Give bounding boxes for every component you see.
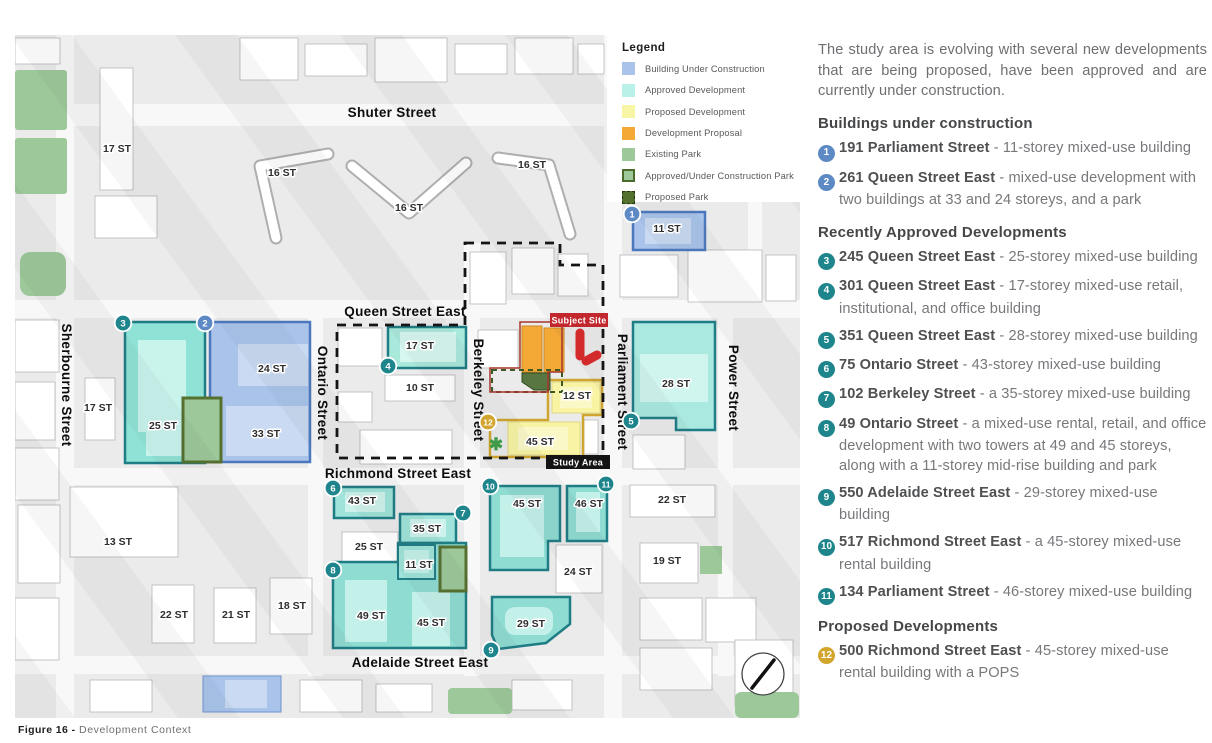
- development-list-item: 11134 Parliament Street - 46-storey mixe…: [818, 583, 1207, 605]
- building-storey-label: 46 ST: [575, 498, 604, 510]
- item-address: 517 Richmond Street East: [839, 534, 1021, 550]
- building-storey-label: 17 ST: [84, 402, 113, 414]
- street-name-label: Richmond Street East: [325, 466, 471, 481]
- building-storey-label: 45 ST: [417, 617, 446, 629]
- building-storey-label: 28 ST: [662, 378, 691, 390]
- street-name-label: Shuter Street: [348, 105, 437, 120]
- building-storey-label: 11 ST: [653, 223, 681, 235]
- study-area-label: Study Area: [553, 458, 604, 468]
- development-list-item: 849 Ontario Street - a mixed-use rental,…: [818, 415, 1207, 477]
- legend-item: Development Proposal: [622, 127, 810, 140]
- map-shape: [766, 255, 796, 301]
- building-storey-label: 18 ST: [278, 600, 307, 612]
- street-name-label: Queen Street East: [344, 304, 466, 319]
- item-description: - 25-storey mixed-use building: [995, 249, 1198, 265]
- map-number-badge-label: 1: [629, 209, 635, 220]
- legend-item: Proposed Park: [622, 191, 810, 204]
- development-list-item: 3245 Queen Street East - 25-storey mixed…: [818, 248, 1207, 270]
- map-number-badge-label: 11: [602, 479, 611, 489]
- legend-item-label: Proposed Development: [645, 107, 745, 117]
- building-storey-label: 45 ST: [526, 436, 555, 448]
- item-address: 102 Berkeley Street: [839, 386, 976, 402]
- section-heading: Buildings under construction: [818, 115, 1207, 132]
- section-heading: Recently Approved Developments: [818, 224, 1207, 241]
- development-list-item: 4301 Queen Street East - 17-storey mixed…: [818, 277, 1207, 319]
- legend-item-label: Building Under Construction: [645, 64, 765, 74]
- street-name-label: Power Street: [726, 345, 741, 431]
- development-text-panel: The study area is evolving with several …: [818, 40, 1207, 691]
- development-proposal-swatch: [622, 127, 635, 140]
- map-number-badge-label: 7: [460, 508, 465, 519]
- approved-park-swatch: [622, 169, 635, 182]
- map-shape: [620, 255, 678, 297]
- item-description: - 46-storey mixed-use building: [990, 584, 1193, 600]
- item-address: 75 Ontario Street: [839, 357, 958, 373]
- building-storey-label: 45 ST: [513, 498, 542, 510]
- map-legend: Legend Building Under ConstructionApprov…: [607, 35, 810, 202]
- map-number-badge-label: 3: [120, 318, 125, 329]
- street-name-label: Parliament Street: [615, 334, 630, 450]
- building-storey-label: 22 ST: [160, 609, 189, 621]
- legend-item-label: Proposed Park: [645, 192, 708, 202]
- legend-item: Proposed Development: [622, 105, 810, 118]
- item-address: 49 Ontario Street: [839, 416, 958, 432]
- figure-caption: Figure 16 - Development Context: [18, 724, 191, 736]
- legend-item: Building Under Construction: [622, 62, 810, 75]
- development-list-item: 10517 Richmond Street East - a 45-storey…: [818, 533, 1207, 575]
- item-address: 500 Richmond Street East: [839, 643, 1021, 659]
- building-storey-label: 35 ST: [413, 523, 442, 535]
- building-storey-label: 25 ST: [149, 420, 178, 432]
- street-name-label: Sherbourne Street: [59, 324, 74, 447]
- legend-item: Approved/Under Construction Park: [622, 169, 810, 182]
- proposed-development-swatch: [622, 105, 635, 118]
- map-number-badge-label: 5: [628, 416, 634, 427]
- map-shape: [455, 44, 507, 74]
- building-storey-label: 17 ST: [103, 143, 132, 155]
- item-number-badge: 7: [818, 391, 835, 408]
- street-name-label: Ontario Street: [315, 346, 330, 440]
- intro-paragraph: The study area is evolving with several …: [818, 40, 1207, 102]
- legend-item: Existing Park: [622, 148, 810, 161]
- building-storey-label: 11 ST: [405, 559, 433, 571]
- item-number-badge: 5: [818, 332, 835, 349]
- building-storey-label: 43 ST: [348, 495, 377, 507]
- legend-items: Building Under ConstructionApproved Deve…: [622, 62, 810, 203]
- item-number-badge: 1: [818, 145, 835, 162]
- item-address: 134 Parliament Street: [839, 584, 990, 600]
- item-number-badge: 10: [818, 539, 835, 556]
- item-address: 550 Adelaide Street East: [839, 485, 1010, 501]
- map-shape: [338, 328, 382, 366]
- under-construction-swatch: [622, 62, 635, 75]
- map-shape: [522, 326, 542, 372]
- map-shape: [706, 598, 756, 642]
- development-list-item: 7102 Berkeley Street - a 35-storey mixed…: [818, 385, 1207, 407]
- building-storey-label: 13 ST: [104, 536, 133, 548]
- item-number-badge: 11: [818, 588, 835, 605]
- legend-item-label: Existing Park: [645, 149, 701, 159]
- building-storey-label: 12 ST: [563, 390, 592, 402]
- item-description: - a 35-storey mixed-use building: [976, 386, 1191, 402]
- map-number-badge-label: 6: [330, 483, 335, 494]
- building-storey-label: 22 ST: [658, 494, 687, 506]
- development-list-item: 2261 Queen Street East - mixed-use devel…: [818, 169, 1207, 211]
- development-list-item: 9550 Adelaide Street East - 29-storey mi…: [818, 484, 1207, 526]
- item-number-badge: 12: [818, 647, 835, 664]
- building-storey-label: 16 ST: [395, 202, 424, 214]
- building-storey-label: 21 ST: [222, 609, 251, 621]
- item-number-badge: 3: [818, 253, 835, 270]
- map-number-badge-label: 8: [330, 565, 335, 576]
- item-number-badge: 9: [818, 489, 835, 506]
- item-address: 245 Queen Street East: [839, 249, 995, 265]
- item-address: 301 Queen Street East: [839, 278, 995, 294]
- map-shape: [15, 320, 59, 372]
- item-number-badge: 8: [818, 420, 835, 437]
- map-number-badge-label: 10: [485, 481, 495, 491]
- building-storey-label: 24 ST: [564, 566, 593, 578]
- building-storey-label: 16 ST: [268, 167, 297, 179]
- map-number-badge-label: 4: [385, 361, 391, 372]
- item-address: 351 Queen Street East: [839, 328, 995, 344]
- item-description: - 11-storey mixed-use building: [990, 140, 1192, 156]
- section-heading: Proposed Developments: [818, 618, 1207, 635]
- pops-asterisk-icon: ✱: [489, 435, 503, 454]
- item-description: - 28-storey mixed-use building: [995, 328, 1198, 344]
- building-storey-label: 19 ST: [653, 555, 682, 567]
- legend-item: Approved Development: [622, 84, 810, 97]
- building-storey-label: 17 ST: [406, 340, 435, 352]
- item-address: 261 Queen Street East: [839, 170, 995, 186]
- building-storey-label: 25 ST: [355, 541, 384, 553]
- building-storey-label: 24 ST: [258, 363, 287, 375]
- item-number-badge: 2: [818, 174, 835, 191]
- building-storey-label: 49 ST: [357, 610, 386, 622]
- map-shape: [584, 420, 598, 454]
- approved-development-swatch: [622, 84, 635, 97]
- existing-park-swatch: [622, 148, 635, 161]
- legend-item-label: Approved Development: [645, 85, 745, 95]
- development-list-item: 5351 Queen Street East - 28-storey mixed…: [818, 327, 1207, 349]
- building-storey-label: 16 ST: [518, 159, 547, 171]
- building-storey-label: 10 ST: [406, 382, 435, 394]
- map-number-badge-label: 2: [202, 318, 207, 329]
- figure-caption-title: Development Context: [76, 724, 192, 736]
- development-list-item: 12500 Richmond Street East - 45-storey m…: [818, 642, 1207, 684]
- item-description: - 43-storey mixed-use building: [958, 357, 1161, 373]
- street-name-label: Adelaide Street East: [352, 655, 489, 670]
- proposed-park-swatch: [622, 191, 635, 204]
- map-shape: [225, 680, 267, 708]
- map-shape: [15, 138, 67, 194]
- legend-item-label: Development Proposal: [645, 128, 742, 138]
- item-address: 191 Parliament Street: [839, 140, 990, 156]
- legend-item-label: Approved/Under Construction Park: [645, 171, 794, 181]
- map-number-badge-label: 9: [488, 645, 493, 656]
- building-storey-label: 33 ST: [252, 428, 281, 440]
- map-shape: [735, 692, 799, 718]
- development-list-item: 675 Ontario Street - 43-storey mixed-use…: [818, 356, 1207, 378]
- legend-title: Legend: [622, 42, 810, 54]
- figure-caption-label: Figure 16 -: [18, 724, 76, 736]
- subject-site-L-marker: [586, 355, 597, 361]
- item-number-badge: 4: [818, 283, 835, 300]
- item-number-badge: 6: [818, 361, 835, 378]
- map-number-badge-label: 12: [483, 417, 493, 427]
- building-storey-label: 29 ST: [517, 618, 546, 630]
- map-shape: [470, 252, 506, 304]
- development-list-item: 1191 Parliament Street - 11-storey mixed…: [818, 139, 1207, 161]
- development-context-figure: 17 ST16 ST16 ST16 ST24 ST25 ST33 ST17 ST…: [0, 0, 1212, 743]
- map-shape: [90, 680, 152, 712]
- subject-site-label: Subject Site: [551, 316, 606, 326]
